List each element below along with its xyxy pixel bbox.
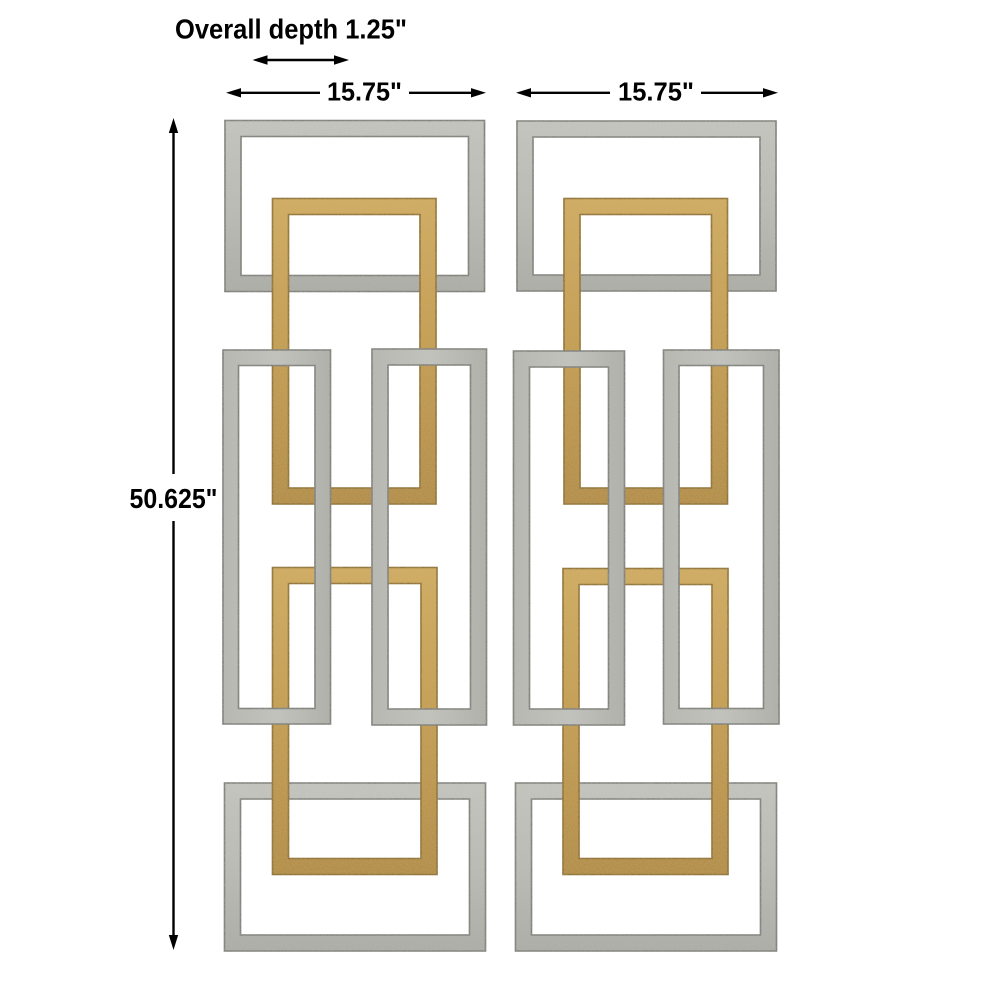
svg-text:15.75": 15.75" [618,76,694,106]
svg-text:Overall depth 1.25": Overall depth 1.25" [175,14,407,45]
svg-text:15.75": 15.75" [327,76,402,106]
svg-text:50.625": 50.625" [130,483,218,514]
